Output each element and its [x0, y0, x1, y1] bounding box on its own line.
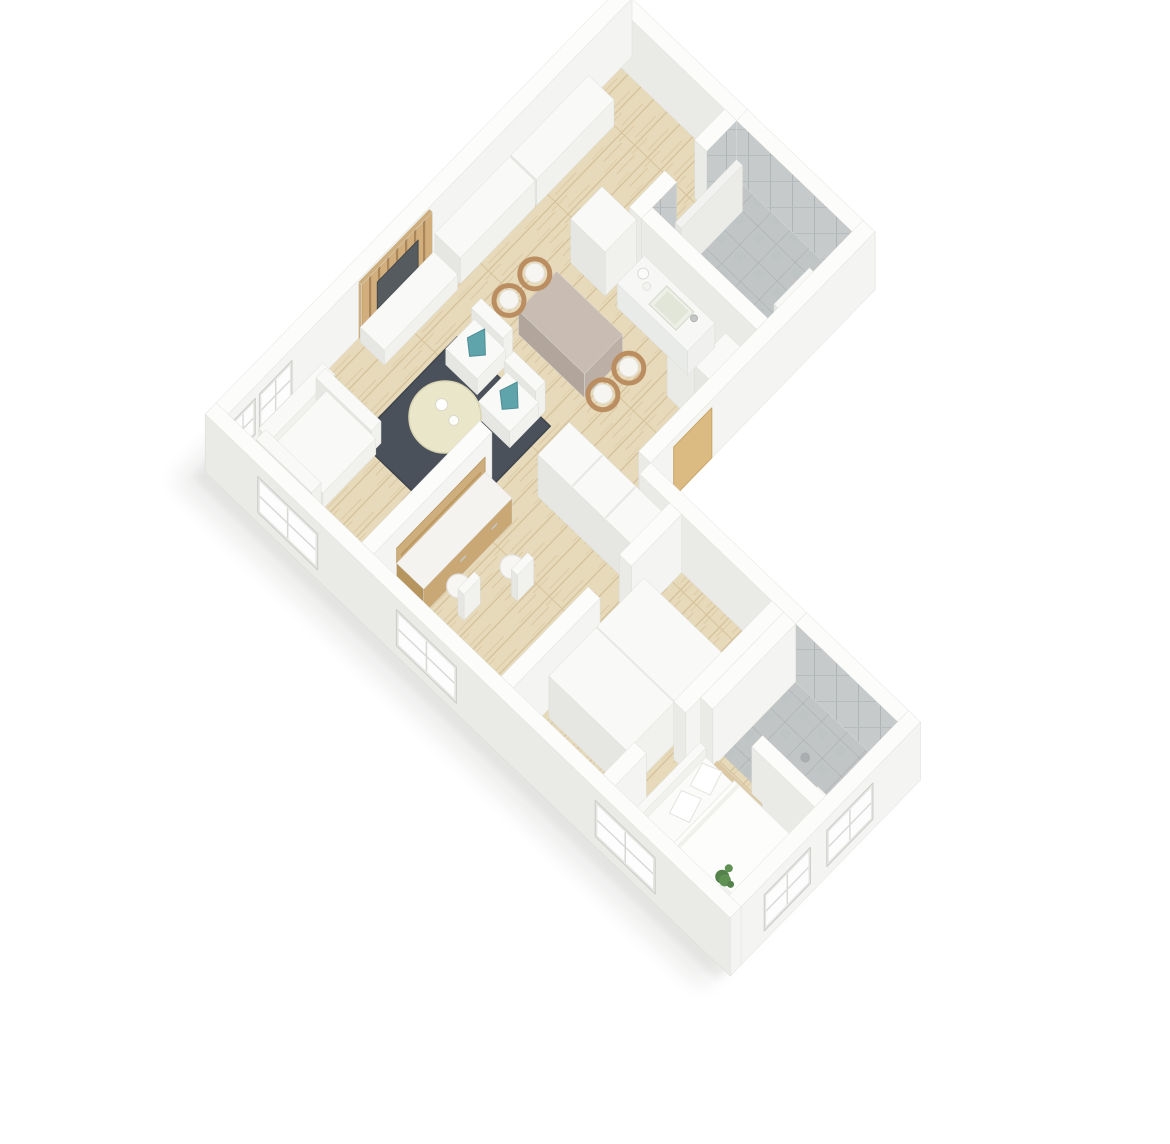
- kitchen-jar: [643, 282, 651, 290]
- coffee-cup-2: [449, 415, 459, 425]
- plant-leaf-4: [725, 864, 733, 872]
- wall-south-east-face: [730, 907, 741, 976]
- kitchen-kettle: [638, 268, 649, 279]
- coffee-cup-1: [436, 399, 448, 411]
- kitchen-faucet: [691, 315, 698, 322]
- dining-chair-seat-4: [593, 384, 612, 403]
- shower-drain: [800, 753, 810, 763]
- dining-chair-seat-3: [619, 358, 638, 377]
- dining-chair-seat-1: [525, 263, 544, 282]
- plant-leaf-5: [727, 881, 734, 888]
- floorplan-stage: [0, 0, 1170, 1144]
- dining-chair-seat-2: [500, 290, 519, 309]
- floorplan-3d-render: [0, 0, 1170, 1144]
